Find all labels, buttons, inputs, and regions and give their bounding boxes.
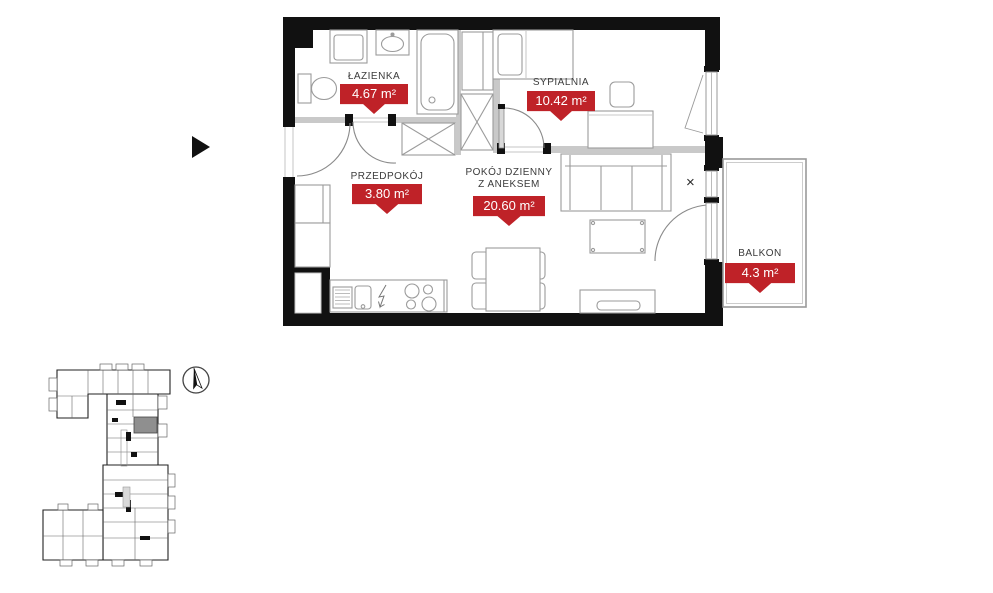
tv-stand [580,290,655,313]
floorplan-page: ŁAZIENKA 4.67 m² SYPIALNIA 10.42 m² PRZE… [0,0,993,593]
wardrobe-crossbox-vertical [461,94,493,150]
hall-wardrobe [295,185,330,267]
kitchen-counter [330,280,447,312]
closets [295,32,493,267]
bedroom-furniture [493,30,653,148]
entrance-arrow-icon [192,136,210,158]
room-label-hallway: PRZEDPOKÓJ [342,171,432,183]
balcony-door-arc [655,205,707,261]
sofa [561,154,671,211]
sink-drainer [333,287,352,308]
coffee-table [590,220,645,253]
room-label-bedroom: SYPIALNIA [516,77,606,89]
kitchen-sink [355,286,371,309]
room-label-balcony: BALKON [715,248,805,260]
minimap-unit-highlight [134,417,157,433]
window-sash-symbol [685,75,703,133]
entrance-door-arc [297,123,350,176]
floorplan-drawing [0,0,993,593]
wardrobe-crossbox-horizontal [402,123,455,155]
desk [588,111,653,148]
room-label-livingroom-line1: POKÓJ DZIENNY [465,167,552,178]
bathroom-sink [376,30,409,55]
washing-machine [330,30,367,63]
building-minimap [43,364,175,566]
bathtub [417,30,458,114]
room-label-livingroom: POKÓJ DZIENNY Z ANEKSEM [454,167,564,190]
bed [493,30,573,79]
dining-set [472,248,545,311]
compass-icon [183,367,209,393]
bedroom-door-arc [504,108,544,148]
bedroom-door-cap [498,104,505,109]
dining-table [486,248,540,311]
window-cross-marker: × [686,175,695,190]
room-label-livingroom-line2: Z ANEKSEM [478,179,540,190]
tall-cabinet [462,32,493,90]
room-label-bathroom: ŁAZIENKA [329,71,419,83]
desk-chair [610,82,634,107]
utility-shaft [295,273,321,313]
bathroom-door-arc [353,122,396,163]
bedroom-door-leaf [499,106,504,148]
windows [685,66,719,265]
